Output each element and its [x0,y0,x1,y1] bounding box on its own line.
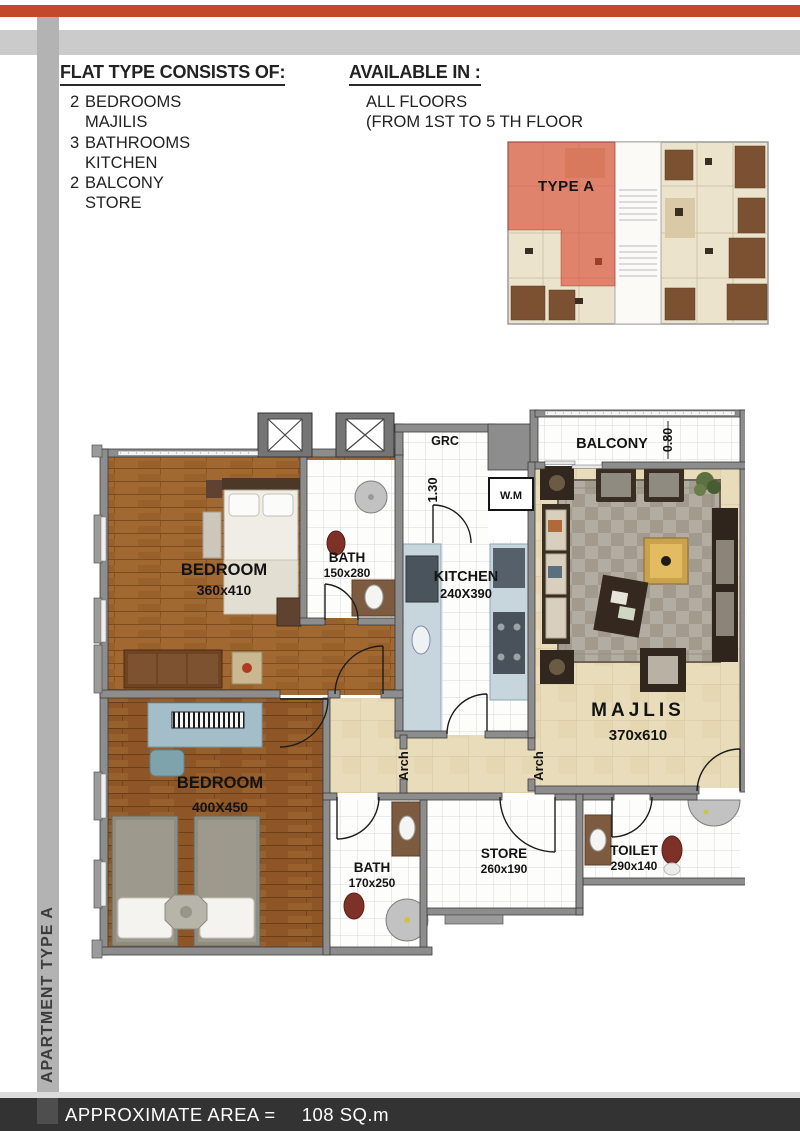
sliding-door-icon [572,465,602,469]
approx-area-label: APPROXIMATE AREA = [65,1104,276,1125]
key-plan-core [615,142,661,324]
majlis-furniture [540,466,738,692]
bath2-name: BATH [354,860,391,875]
toilet-name: TOILET [610,843,659,858]
bed-headboard [222,478,302,490]
list-item: STORE [70,193,285,213]
bedroom2-dims: 400X450 [192,799,248,815]
top-gray-bar [0,30,800,55]
kitchen-dims: 240X390 [440,586,492,601]
bedroom1-name: BEDROOM [181,561,267,579]
flat-type-title: FLAT TYPE CONSISTS OF: [60,62,285,86]
toilet-dims: 290x140 [611,859,658,873]
majlis-dims: 370x610 [609,727,667,744]
footer-bar: APPROXIMATE AREA =108 SQ.m [0,1098,800,1131]
sink-icon [590,829,606,851]
toilet-icon [344,893,364,919]
bath2-dims: 170x250 [349,876,396,890]
balcony-name: BALCONY [576,436,648,452]
floor-plan: W.M 0.80 1.30 GRC BEDROOM 360x410 BATH 1… [85,405,745,965]
stove-icon [493,612,525,674]
dresser-icon [277,598,301,626]
washing-machine: W.M [489,478,533,510]
grc-label: GRC [431,434,459,448]
available-in-lines: ALL FLOORS (FROM 1ST TO 5 TH FLOOR [349,92,583,133]
sink-icon [412,626,430,654]
flat-type-list: 2BEDROOMS MAJILIS 3BATHROOMS KITCHEN 2BA… [60,92,285,214]
list-item: KITCHEN [70,153,285,173]
coffee-table-icon [593,575,648,638]
sidebar-footer-overlap [37,1098,58,1124]
kitchen-name: KITCHEN [434,569,498,585]
brochure-page: APARTMENT TYPE A FLAT TYPE CONSISTS OF: … [0,0,800,1131]
type-a-label: TYPE A [538,178,595,195]
apartment-type-label: APARTMENT TYPE A [37,895,59,1095]
keyboard-icon [172,712,244,728]
arch1-label: Arch [396,751,411,781]
store-dims: 260x190 [481,862,528,876]
list-item: 2BEDROOMS [70,92,285,112]
toilet-icon [662,836,682,864]
list-item: MAJILIS [70,112,285,132]
nightstand-icon [206,480,222,498]
balcony-depth-label: 0.80 [661,428,675,452]
flat-type-block: FLAT TYPE CONSISTS OF: 2BEDROOMS MAJILIS… [60,62,285,214]
arch2-label: Arch [531,751,546,781]
sliding-door-icon [545,461,575,465]
sink-icon [399,816,415,840]
corridor-floor [400,432,488,540]
approx-area-value: 108 SQ.m [302,1104,389,1125]
bench-icon [203,512,221,558]
corridor-width-label: 1.30 [425,477,440,502]
bath1-dims: 150x280 [324,566,371,580]
bedroom1-dims: 360x410 [197,582,252,598]
majlis-name: MAJLIS [591,700,685,721]
bedroom2-name: BEDROOM [177,774,263,792]
sink-icon [365,585,383,609]
store-name: STORE [481,846,527,861]
available-in-block: AVAILABLE IN : ALL FLOORS (FROM 1ST TO 5… [349,62,583,133]
building-key-plan: TYPE A [505,138,772,330]
bath1-name: BATH [329,550,366,565]
available-in-title: AVAILABLE IN : [349,62,481,86]
list-item: 3BATHROOMS [70,133,285,153]
top-accent-bar [0,5,800,17]
tv-unit-icon [712,508,738,662]
list-item: 2BALCONY [70,173,285,193]
chair-icon [150,750,184,776]
wm-label: W.M [500,490,522,502]
